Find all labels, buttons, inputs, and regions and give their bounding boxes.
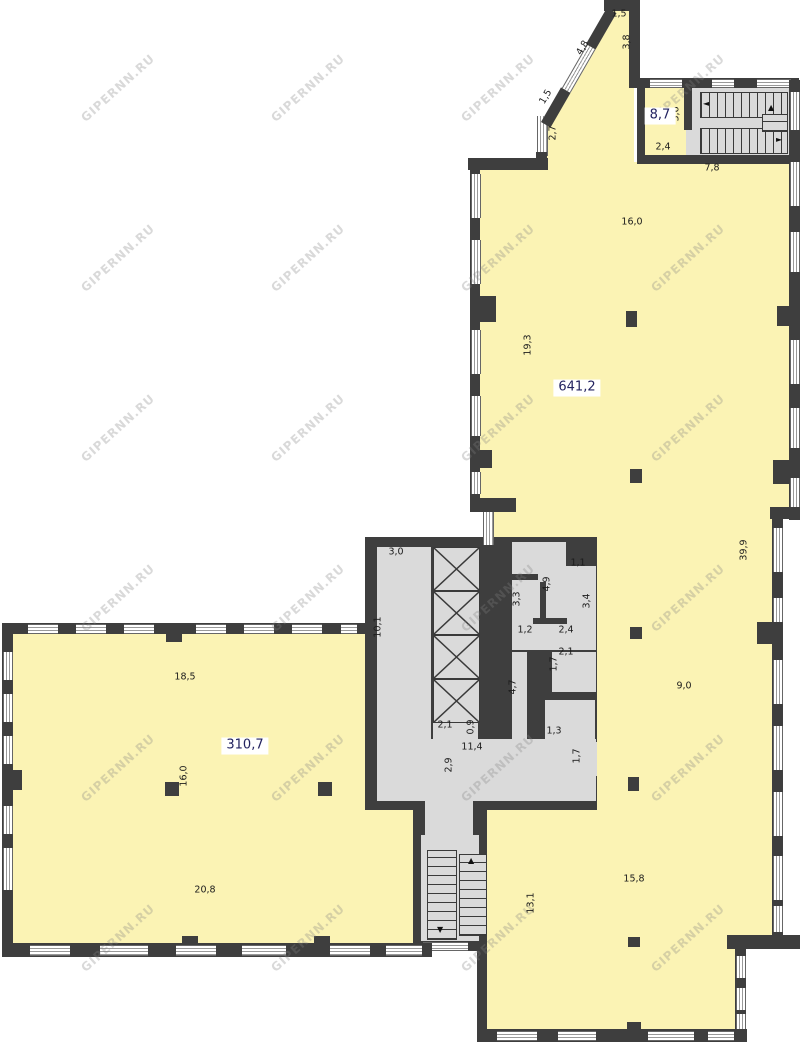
dimension-label: 18,5 [174, 672, 195, 682]
dimension-label: 1,7 [572, 748, 582, 763]
area-label: 310,7 [221, 738, 268, 755]
dimension-label: 0,9 [466, 719, 476, 734]
dimension-label: 10,1 [373, 616, 383, 637]
dimension-label: 19,3 [523, 334, 533, 355]
dimension-label: 1,5 [611, 9, 626, 19]
dimension-label: 3,8 [622, 34, 632, 49]
dimension-label: 4,9 [542, 576, 552, 591]
area-label: 641,2 [553, 380, 600, 397]
dimension-label: 20,8 [194, 885, 215, 895]
dimension-label: 2,9 [444, 757, 454, 772]
dimension-label: 1,5 [538, 88, 554, 106]
dimension-label: 7,8 [704, 163, 719, 173]
dimension-label: 16,0 [621, 217, 642, 227]
label-layer: 1,53,84,81,52,73,62,47,816,019,339,99,01… [0, 0, 800, 1049]
dimension-label: 15,8 [623, 874, 644, 884]
floor-plan: ▼ ▲ ◄ ► ▲ [0, 0, 800, 1049]
dimension-label: 1,1 [570, 558, 585, 568]
dimension-label: 2,1 [437, 720, 452, 730]
dimension-label: 3,0 [388, 547, 403, 557]
dimension-label: 3,3 [512, 591, 522, 606]
dimension-label: 4,8 [575, 39, 591, 57]
dimension-label: 13,1 [526, 892, 536, 913]
dimension-label: 9,0 [676, 681, 691, 691]
dimension-label: 4,7 [508, 679, 518, 694]
dimension-label: 11,4 [461, 742, 482, 752]
dimension-label: 2,4 [655, 142, 670, 152]
dimension-label: 16,0 [179, 765, 189, 786]
dimension-label: 2,1 [558, 647, 573, 657]
dimension-label: 1,7 [549, 656, 559, 671]
dimension-label: 2,4 [558, 625, 573, 635]
dimension-label: 1,3 [546, 726, 561, 736]
area-label: 8,7 [645, 108, 676, 125]
dimension-label: 3,4 [582, 593, 592, 608]
dimension-label: 2,7 [548, 125, 558, 140]
dimension-label: 39,9 [739, 539, 749, 560]
dimension-label: 1,2 [517, 625, 532, 635]
